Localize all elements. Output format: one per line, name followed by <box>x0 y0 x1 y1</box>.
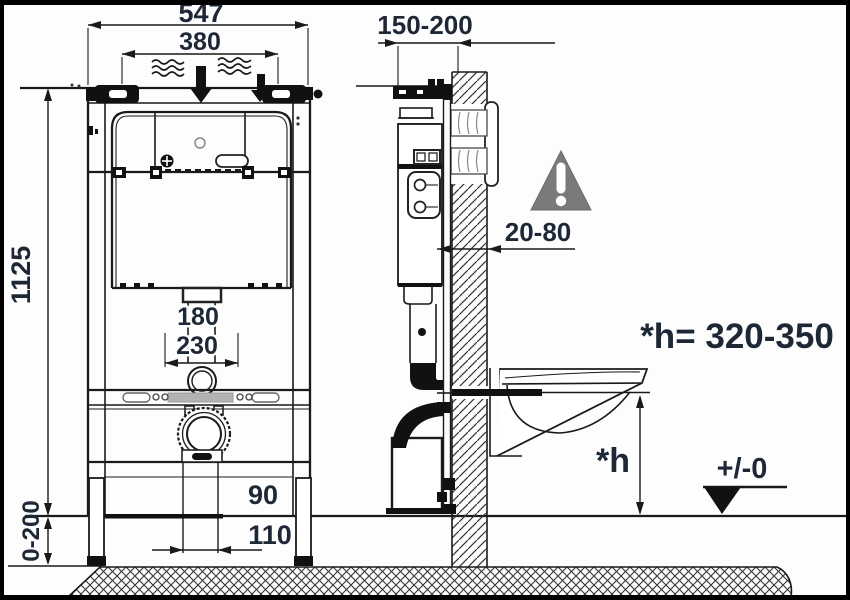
dim-frame-height: 1125 <box>6 246 36 305</box>
mark-dot <box>71 84 74 87</box>
dim-inner-width: 380 <box>179 28 221 56</box>
wall-section <box>451 72 498 567</box>
dim-depth-range: 150-200 <box>377 10 472 40</box>
flush-elbow <box>410 363 443 390</box>
dim-offset-230: 230 <box>176 332 218 360</box>
level-mark-icon <box>703 487 787 514</box>
screw-icon <box>161 155 174 168</box>
dim-seat-height-symbol: *h <box>596 442 630 480</box>
diagram-canvas: 547 380 1125 0-200 180 230 90 110 <box>0 0 850 600</box>
dim-seat-height-formula: *h= 320-350 <box>640 317 834 356</box>
cistern-side <box>398 108 442 363</box>
inspection-hole <box>195 138 205 148</box>
technical-drawing: 547 380 1125 0-200 180 230 90 110 <box>0 0 850 600</box>
middle-rail <box>88 390 310 409</box>
down-arrow-icon <box>190 66 270 103</box>
gray-bar <box>168 393 233 402</box>
side-top-bracket <box>393 79 452 100</box>
drain-elbow <box>386 402 455 514</box>
mark-dot <box>78 85 81 88</box>
dim-floor-level: +/-0 <box>717 453 768 485</box>
dim-leg-adjust: 0-200 <box>18 500 45 561</box>
cistern-front <box>88 112 310 288</box>
floor-slab <box>25 516 848 597</box>
dim-offset-180: 180 <box>177 303 219 331</box>
dim-drain-110: 110 <box>248 520 292 550</box>
warning-triangle-icon <box>531 151 591 210</box>
overflow-slot <box>216 155 248 167</box>
dim-wall-clearance: 20-80 <box>505 217 572 247</box>
drain-base-bar <box>105 514 223 519</box>
floor-hatch-band <box>68 567 791 597</box>
dim-drain-90: 90 <box>248 480 278 510</box>
